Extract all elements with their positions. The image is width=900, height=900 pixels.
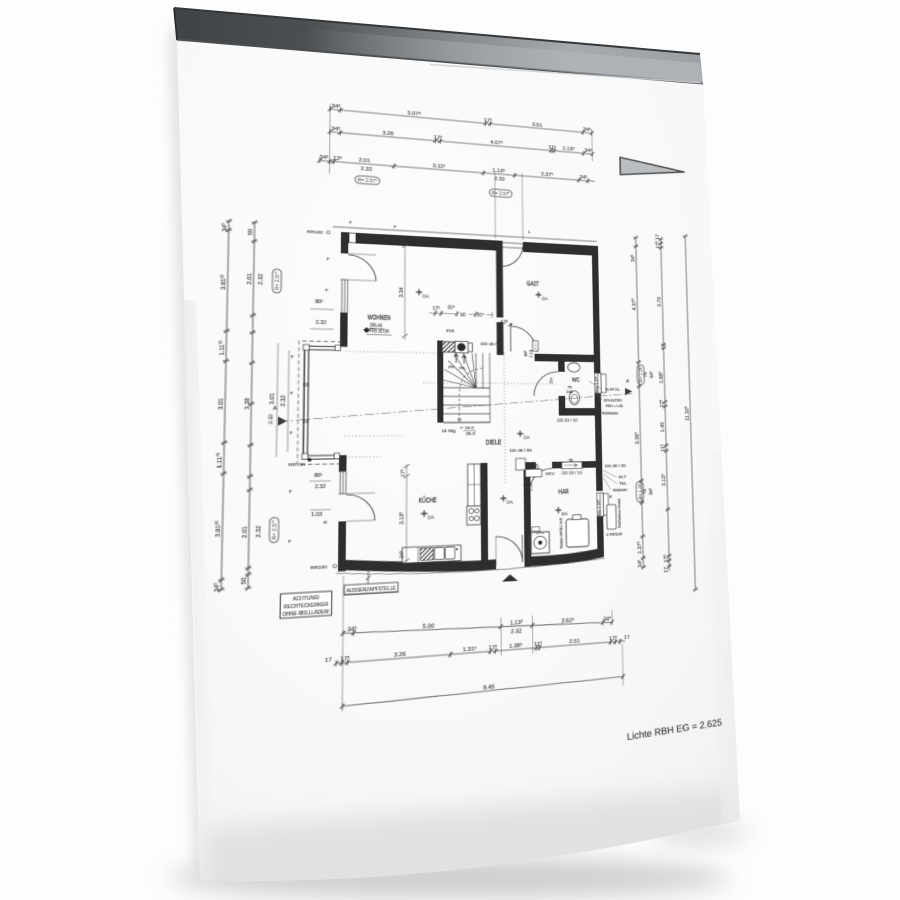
svg-text:2.19: 2.19	[528, 483, 532, 491]
svg-text:HKV: HKV	[546, 472, 556, 477]
svg-text:1.45: 1.45	[660, 422, 666, 433]
svg-text:R= 2.575: R= 2.575	[274, 271, 281, 290]
svg-text:15 Stg: 15 Stg	[442, 429, 456, 434]
svg-text:RR100: RR100	[288, 462, 305, 468]
svg-text:175: 175	[340, 654, 350, 663]
svg-text:GAST: GAST	[527, 280, 539, 288]
svg-text:945: 945	[648, 488, 654, 495]
svg-text:115: 115	[534, 640, 543, 648]
svg-text:DA: DA	[422, 294, 429, 299]
svg-text:BRH= 1.375: BRH= 1.375	[596, 499, 601, 519]
svg-text:5.00: 5.00	[422, 623, 434, 630]
svg-text:3.8125: 3.8125	[219, 274, 228, 290]
svg-text:RR100: RR100	[310, 565, 327, 572]
svg-text:DA: DA	[507, 500, 514, 506]
svg-text:F: F	[325, 288, 328, 293]
svg-text:76: 76	[644, 372, 649, 377]
svg-text:F: F	[290, 431, 293, 437]
svg-text:2.51: 2.51	[569, 638, 580, 645]
svg-text:2.01: 2.01	[246, 273, 253, 285]
svg-text:17: 17	[624, 634, 630, 641]
svg-text:3.8125: 3.8125	[213, 520, 222, 537]
svg-text:175: 175	[658, 399, 665, 407]
svg-text:F: F	[327, 257, 330, 262]
svg-text:L: L	[528, 230, 531, 235]
svg-text:2.32: 2.32	[268, 414, 274, 424]
svg-text:1.03: 1.03	[311, 512, 322, 518]
svg-text:76: 76	[567, 385, 572, 389]
svg-text:-4b-: -4b-	[567, 457, 574, 461]
svg-text:R: R	[609, 495, 612, 499]
svg-text:R: R	[323, 520, 327, 526]
svg-text:3.26: 3.26	[394, 651, 406, 659]
svg-text:345: 345	[212, 582, 221, 592]
svg-text:2.32: 2.32	[315, 484, 326, 490]
svg-text:Lichte RBH EG = 2.625: Lichte RBH EG = 2.625	[627, 717, 723, 742]
svg-text:DA: DA	[542, 296, 549, 301]
svg-text:2.19: 2.19	[529, 349, 533, 357]
svg-text:3.365: 3.365	[634, 431, 641, 444]
svg-text:DD 20 / 10: DD 20 / 10	[562, 471, 583, 477]
svg-text:945: 945	[649, 371, 655, 378]
svg-text:2.32: 2.32	[315, 320, 326, 326]
svg-text:o RR100: o RR100	[606, 532, 622, 538]
svg-text:2.32: 2.32	[257, 273, 264, 285]
svg-text:DA: DA	[524, 435, 531, 440]
svg-text:3.70: 3.70	[657, 296, 663, 307]
svg-text:WC: WC	[572, 376, 580, 384]
svg-text:F: F	[289, 489, 292, 495]
svg-text:1.1175: 1.1175	[215, 452, 224, 468]
svg-text:2.32: 2.32	[511, 628, 523, 635]
svg-text:PA: PA	[448, 365, 454, 370]
svg-text:175: 175	[433, 306, 440, 312]
svg-text:3.135: 3.135	[399, 512, 406, 525]
svg-text:885: 885	[315, 299, 323, 305]
svg-text:815: 815	[477, 312, 484, 318]
svg-text:17: 17	[655, 234, 661, 240]
svg-text:1.375: 1.375	[636, 541, 643, 554]
svg-text:DA: DA	[428, 515, 435, 521]
svg-text:345: 345	[220, 222, 229, 232]
svg-text:345: 345	[399, 551, 405, 559]
svg-text:4.375: 4.375	[630, 298, 637, 311]
svg-text:175: 175	[654, 240, 661, 248]
svg-text:PA: PA	[459, 366, 465, 371]
svg-text:1.1175: 1.1175	[217, 340, 226, 356]
svg-text:19.0: 19.0	[465, 426, 474, 431]
svg-text:11.325: 11.325	[684, 406, 691, 421]
svg-text:RoDutdoor Modul: RoDutdoor Modul	[617, 499, 622, 528]
svg-text:50: 50	[240, 577, 248, 585]
svg-text:TEL: TEL	[619, 481, 627, 486]
svg-text:345: 345	[629, 254, 636, 262]
svg-text:1.885: 1.885	[658, 371, 665, 384]
svg-text:175: 175	[400, 469, 406, 476]
svg-text:HAR: HAR	[558, 488, 569, 496]
svg-text:885: 885	[314, 472, 322, 478]
svg-text:DD 46 / 55: DD 46 / 55	[510, 448, 532, 454]
svg-text:#16: #16	[446, 329, 454, 334]
svg-text:F: F	[288, 539, 291, 545]
svg-text:345: 345	[636, 559, 643, 568]
svg-text:625: 625	[501, 319, 508, 325]
svg-text:F: F	[291, 355, 294, 361]
svg-text:BRH= 1.375: BRH= 1.375	[594, 376, 599, 396]
svg-text:KLAR GL.: KLAR GL.	[605, 387, 620, 392]
svg-text:375: 375	[548, 377, 554, 384]
svg-text:115: 115	[659, 444, 666, 452]
svg-text:9.45: 9.45	[483, 684, 495, 692]
svg-text:375: 375	[535, 463, 541, 470]
svg-text:A: A	[273, 406, 277, 412]
svg-text:325: 325	[447, 305, 454, 311]
svg-text:2.625: 2.625	[561, 616, 574, 624]
svg-text:26.3: 26.3	[466, 431, 475, 436]
svg-text:1.135: 1.135	[510, 619, 524, 627]
svg-text:Wasser: Wasser	[613, 488, 628, 494]
svg-text:885: 885	[523, 350, 528, 356]
svg-text:DD 30 / 20: DD 30 / 20	[605, 464, 626, 469]
svg-text:F: F	[290, 391, 293, 397]
svg-text:17: 17	[325, 657, 333, 664]
svg-text:A: A	[626, 379, 629, 384]
svg-text:245: 245	[566, 390, 573, 394]
svg-text:3.01: 3.01	[269, 392, 276, 404]
svg-text:RSH = 1.35: RSH = 1.35	[606, 404, 623, 409]
svg-text:2.32: 2.32	[255, 525, 263, 538]
svg-text:SP.KASTEN: SP.KASTEN	[604, 398, 622, 403]
svg-text:ELT: ELT	[619, 475, 627, 480]
svg-text:50: 50	[460, 313, 465, 318]
svg-text:F: F	[393, 225, 396, 230]
svg-text:345: 345	[347, 625, 357, 633]
svg-text:3.38: 3.38	[244, 398, 251, 410]
svg-text:76: 76	[643, 489, 648, 494]
svg-text:2.32: 2.32	[280, 395, 287, 407]
svg-text:R= 2.575: R= 2.575	[271, 520, 278, 540]
svg-text:175: 175	[662, 554, 669, 563]
svg-text:3.34: 3.34	[399, 287, 405, 298]
svg-text:3.135: 3.135	[660, 473, 667, 486]
svg-text:F: F	[349, 220, 352, 225]
svg-text:DIELE: DIELE	[486, 438, 502, 446]
svg-text:50: 50	[247, 228, 254, 235]
svg-text:DA: DA	[562, 512, 569, 517]
svg-text:Rohrkasten: Rohrkasten	[602, 411, 618, 416]
svg-text:Rotex HPSU 6-8: Rotex HPSU 6-8	[559, 518, 564, 549]
svg-text:3.01: 3.01	[217, 398, 225, 410]
svg-text:RR100: RR100	[307, 230, 323, 236]
svg-text:FFB ±0.0®: FFB ±0.0®	[369, 328, 389, 335]
svg-text:WOHNEN: WOHNEN	[368, 313, 391, 322]
svg-text:2.01: 2.01	[241, 526, 249, 539]
svg-text:296.44: 296.44	[370, 323, 383, 329]
svg-text:DD 46 / 60: DD 46 / 60	[481, 342, 503, 348]
svg-text:KÜCHE: KÜCHE	[419, 496, 437, 505]
svg-text:17: 17	[663, 566, 669, 573]
svg-text:345: 345	[603, 615, 612, 622]
svg-text:DD 20 / 20: DD 20 / 20	[557, 418, 578, 423]
